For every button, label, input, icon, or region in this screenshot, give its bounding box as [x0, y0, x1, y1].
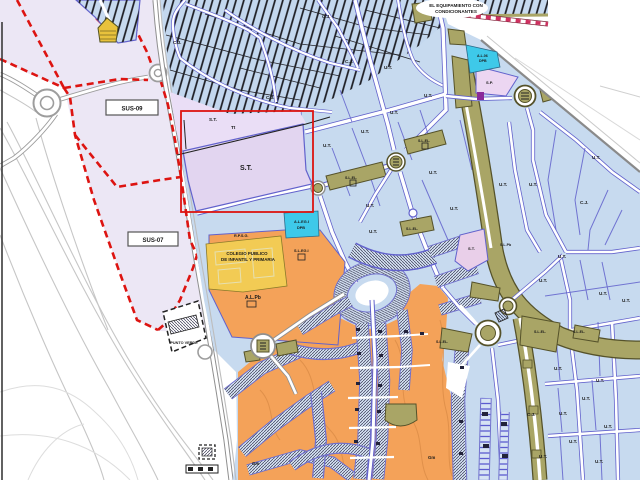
svg-text:U.T.: U.T. — [569, 439, 577, 444]
svg-text:U.T.: U.T. — [529, 182, 537, 187]
svg-text:S.L.EL.: S.L.EL. — [436, 340, 448, 344]
svg-text:R.P.S.G.: R.P.S.G. — [234, 234, 249, 238]
svg-text:A.L.06: A.L.06 — [477, 54, 488, 58]
svg-text:U.T.: U.T. — [595, 459, 603, 464]
svg-text:S.L.Pb: S.L.Pb — [500, 243, 512, 247]
svg-text:U.T.: U.T. — [366, 203, 374, 208]
svg-text:C.J.: C.J. — [266, 95, 274, 100]
svg-text:S.L.EL.: S.L.EL. — [406, 227, 418, 231]
svg-text:A.L.EG.I: A.L.EG.I — [294, 220, 309, 224]
svg-text:U.T.: U.T. — [450, 206, 458, 211]
svg-text:EL EQUIPAMIENTO CON: EL EQUIPAMIENTO CON — [429, 3, 483, 8]
svg-text:PUNTO VERDE: PUNTO VERDE — [170, 341, 198, 345]
svg-text:U.T.: U.T. — [539, 278, 547, 283]
svg-text:C.J.: C.J. — [322, 14, 330, 19]
svg-text:U.T.: U.T. — [429, 170, 437, 175]
svg-text:U.T.: U.T. — [499, 182, 507, 187]
svg-text:S.T.: S.T. — [468, 246, 475, 251]
svg-text:Gm: Gm — [428, 455, 435, 460]
svg-text:SUS-07: SUS-07 — [142, 238, 164, 244]
svg-text:U.T.: U.T. — [582, 396, 590, 401]
svg-text:S.L.EG.I: S.L.EG.I — [294, 249, 309, 253]
svg-text:DE INFANTIL Y PRIMARIA: DE INFANTIL Y PRIMARIA — [221, 257, 276, 262]
svg-text:U.T.: U.T. — [384, 65, 392, 70]
svg-text:S.T.: S.T. — [209, 117, 217, 122]
svg-text:S.P.: S.P. — [486, 80, 493, 85]
svg-text:C.J.: C.J. — [527, 412, 535, 417]
svg-text:S.L.EL.: S.L.EL. — [345, 176, 357, 180]
svg-text:U.T.: U.T. — [592, 155, 600, 160]
svg-text:U.T.: U.T. — [361, 129, 369, 134]
svg-text:DPB: DPB — [479, 59, 487, 63]
svg-text:U.T.: U.T. — [323, 143, 331, 148]
svg-text:U.T.: U.T. — [539, 454, 547, 459]
svg-text:Tt: Tt — [231, 125, 236, 130]
svg-text:S.T.: S.T. — [240, 165, 252, 172]
svg-text:U.T.: U.T. — [604, 424, 612, 429]
svg-text:CONDICIONANTES: CONDICIONANTES — [435, 9, 477, 14]
svg-text:U.T.: U.T. — [424, 93, 432, 98]
svg-text:U.T.: U.T. — [558, 254, 566, 259]
svg-text:S.L.EL.: S.L.EL. — [418, 139, 430, 143]
svg-text:S.L.EL.: S.L.EL. — [573, 330, 585, 334]
svg-text:S.L.EL.: S.L.EL. — [534, 330, 546, 334]
svg-text:C.J.: C.J. — [580, 200, 588, 205]
svg-text:U.T.: U.T. — [390, 110, 398, 115]
svg-text:U.T.: U.T. — [369, 229, 377, 234]
svg-text:DPB: DPB — [297, 226, 305, 230]
svg-text:Gm: Gm — [252, 461, 259, 466]
svg-text:C.J.: C.J. — [345, 59, 353, 64]
svg-text:U.T.: U.T. — [554, 366, 562, 371]
svg-text:COLEGIO PUBLICO: COLEGIO PUBLICO — [226, 251, 268, 256]
svg-text:U.T.: U.T. — [596, 378, 604, 383]
svg-text:U.T.: U.T. — [622, 298, 630, 303]
svg-text:SUS-09: SUS-09 — [121, 107, 143, 113]
svg-text:U.T.: U.T. — [599, 291, 607, 296]
svg-text:A.L.Pb: A.L.Pb — [245, 295, 261, 301]
svg-text:U.T.: U.T. — [559, 411, 567, 416]
svg-text:C.J.: C.J. — [173, 40, 181, 45]
